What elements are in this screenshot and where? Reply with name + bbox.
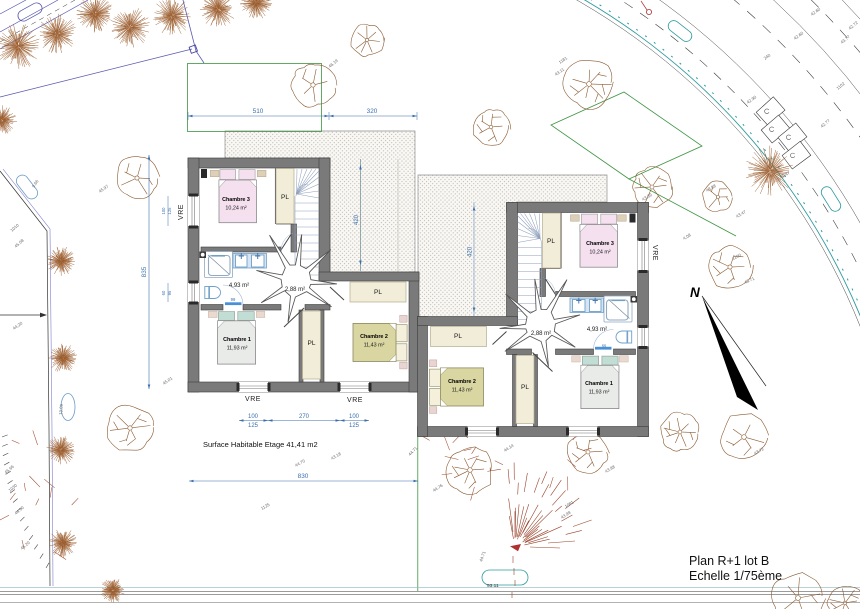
svg-text:Chambre 3: Chambre 3 xyxy=(586,241,614,247)
svg-text:420: 420 xyxy=(468,246,474,257)
svg-text:100: 100 xyxy=(161,207,166,215)
svg-text:100: 100 xyxy=(349,414,360,420)
svg-text:VRE: VRE xyxy=(347,397,363,404)
svg-text:PL: PL xyxy=(547,238,555,245)
svg-text:830: 830 xyxy=(298,473,309,480)
svg-text:VRE: VRE xyxy=(651,245,658,261)
svg-text:835: 835 xyxy=(141,266,148,277)
svg-text:4,93 m²: 4,93 m² xyxy=(229,283,249,289)
svg-text:VRE: VRE xyxy=(178,204,185,220)
svg-text:Plan R+1 lot B: Plan R+1 lot B xyxy=(689,554,769,568)
svg-text:Chambre 3: Chambre 3 xyxy=(222,197,250,203)
svg-text:60: 60 xyxy=(161,290,166,295)
svg-text:93.11: 93.11 xyxy=(487,583,499,589)
svg-text:11,43 m²: 11,43 m² xyxy=(364,343,385,349)
svg-text:13.09: 13.09 xyxy=(58,403,64,415)
svg-text:Surface Habitable Etage 41,41: Surface Habitable Etage 41,41 m2 xyxy=(203,440,318,449)
svg-text:Chambre 2: Chambre 2 xyxy=(360,334,388,340)
svg-text:Chambre 1: Chambre 1 xyxy=(223,337,251,343)
svg-text:99: 99 xyxy=(231,297,236,302)
svg-text:PL: PL xyxy=(281,194,289,201)
svg-text:PL: PL xyxy=(374,289,382,296)
svg-text:270: 270 xyxy=(299,414,310,420)
svg-text:Chambre 1: Chambre 1 xyxy=(585,381,613,387)
svg-text:100: 100 xyxy=(248,414,259,420)
svg-text:10,24 m²: 10,24 m² xyxy=(589,250,610,256)
svg-text:11,93 m²: 11,93 m² xyxy=(589,390,610,396)
svg-text:N: N xyxy=(690,285,700,300)
svg-text:510: 510 xyxy=(253,108,264,115)
svg-text:PL: PL xyxy=(454,333,462,340)
svg-text:PL: PL xyxy=(308,340,316,347)
svg-text:320: 320 xyxy=(367,108,378,115)
svg-text:4,93 m²: 4,93 m² xyxy=(587,327,607,333)
svg-text:ss: ss xyxy=(602,343,606,348)
svg-text:2,88 m²: 2,88 m² xyxy=(531,331,551,337)
svg-text:2,88 m²: 2,88 m² xyxy=(285,287,305,293)
svg-text:11,43 m²: 11,43 m² xyxy=(452,388,473,394)
svg-text:125: 125 xyxy=(349,423,360,429)
svg-text:125: 125 xyxy=(248,423,259,429)
svg-text:VRE: VRE xyxy=(245,396,261,403)
svg-text:11,93 m²: 11,93 m² xyxy=(227,346,248,352)
svg-text:420: 420 xyxy=(354,214,360,225)
svg-text:Echelle 1/75ème: Echelle 1/75ème xyxy=(689,569,782,583)
svg-text:10,24 m²: 10,24 m² xyxy=(225,206,246,212)
svg-text:PL: PL xyxy=(521,384,529,391)
svg-text:Chambre 2: Chambre 2 xyxy=(448,379,476,385)
